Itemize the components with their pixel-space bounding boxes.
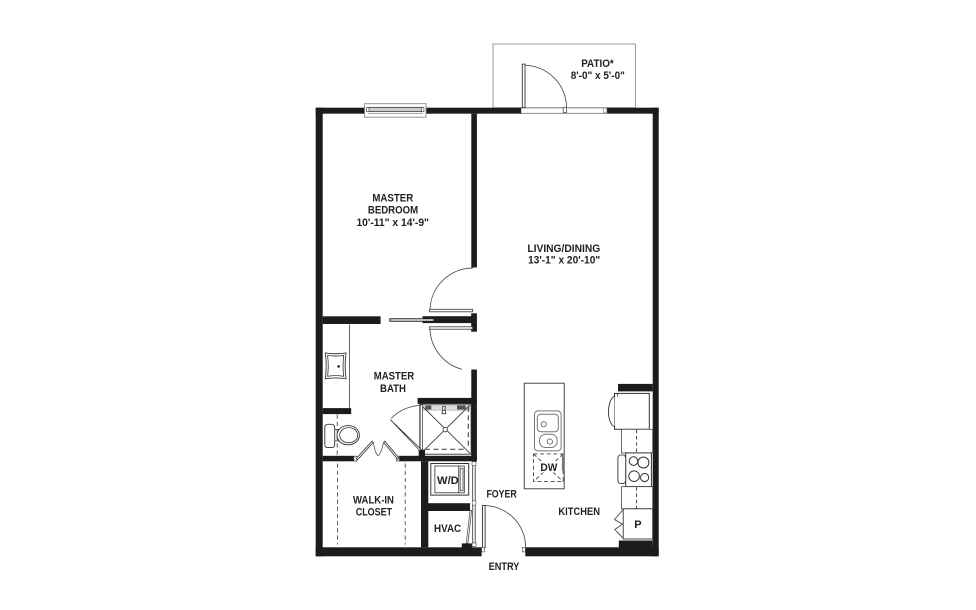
svg-text:MASTER: MASTER [374,370,414,382]
svg-text:BEDROOM: BEDROOM [368,205,418,217]
svg-text:PATIO*: PATIO* [581,58,614,70]
svg-text:HVAC: HVAC [434,523,461,535]
svg-text:13'-1" x 20'-10": 13'-1" x 20'-10" [528,255,600,267]
svg-text:8'-0" x 5'-0": 8'-0" x 5'-0" [571,70,625,82]
svg-text:P: P [634,519,641,531]
svg-text:MASTER: MASTER [372,193,413,205]
svg-text:BATH: BATH [380,383,406,395]
svg-text:FOYER: FOYER [486,489,516,501]
svg-text:10'-11" x 14'-9": 10'-11" x 14'-9" [356,217,429,229]
svg-text:LIVING/DINING: LIVING/DINING [527,243,600,255]
svg-text:DW: DW [540,462,558,474]
svg-text:CLOSET: CLOSET [356,506,393,518]
svg-text:W/D: W/D [437,475,459,487]
svg-text:WALK-IN: WALK-IN [353,495,394,507]
svg-text:ENTRY: ENTRY [489,561,520,573]
svg-text:KITCHEN: KITCHEN [558,506,600,518]
